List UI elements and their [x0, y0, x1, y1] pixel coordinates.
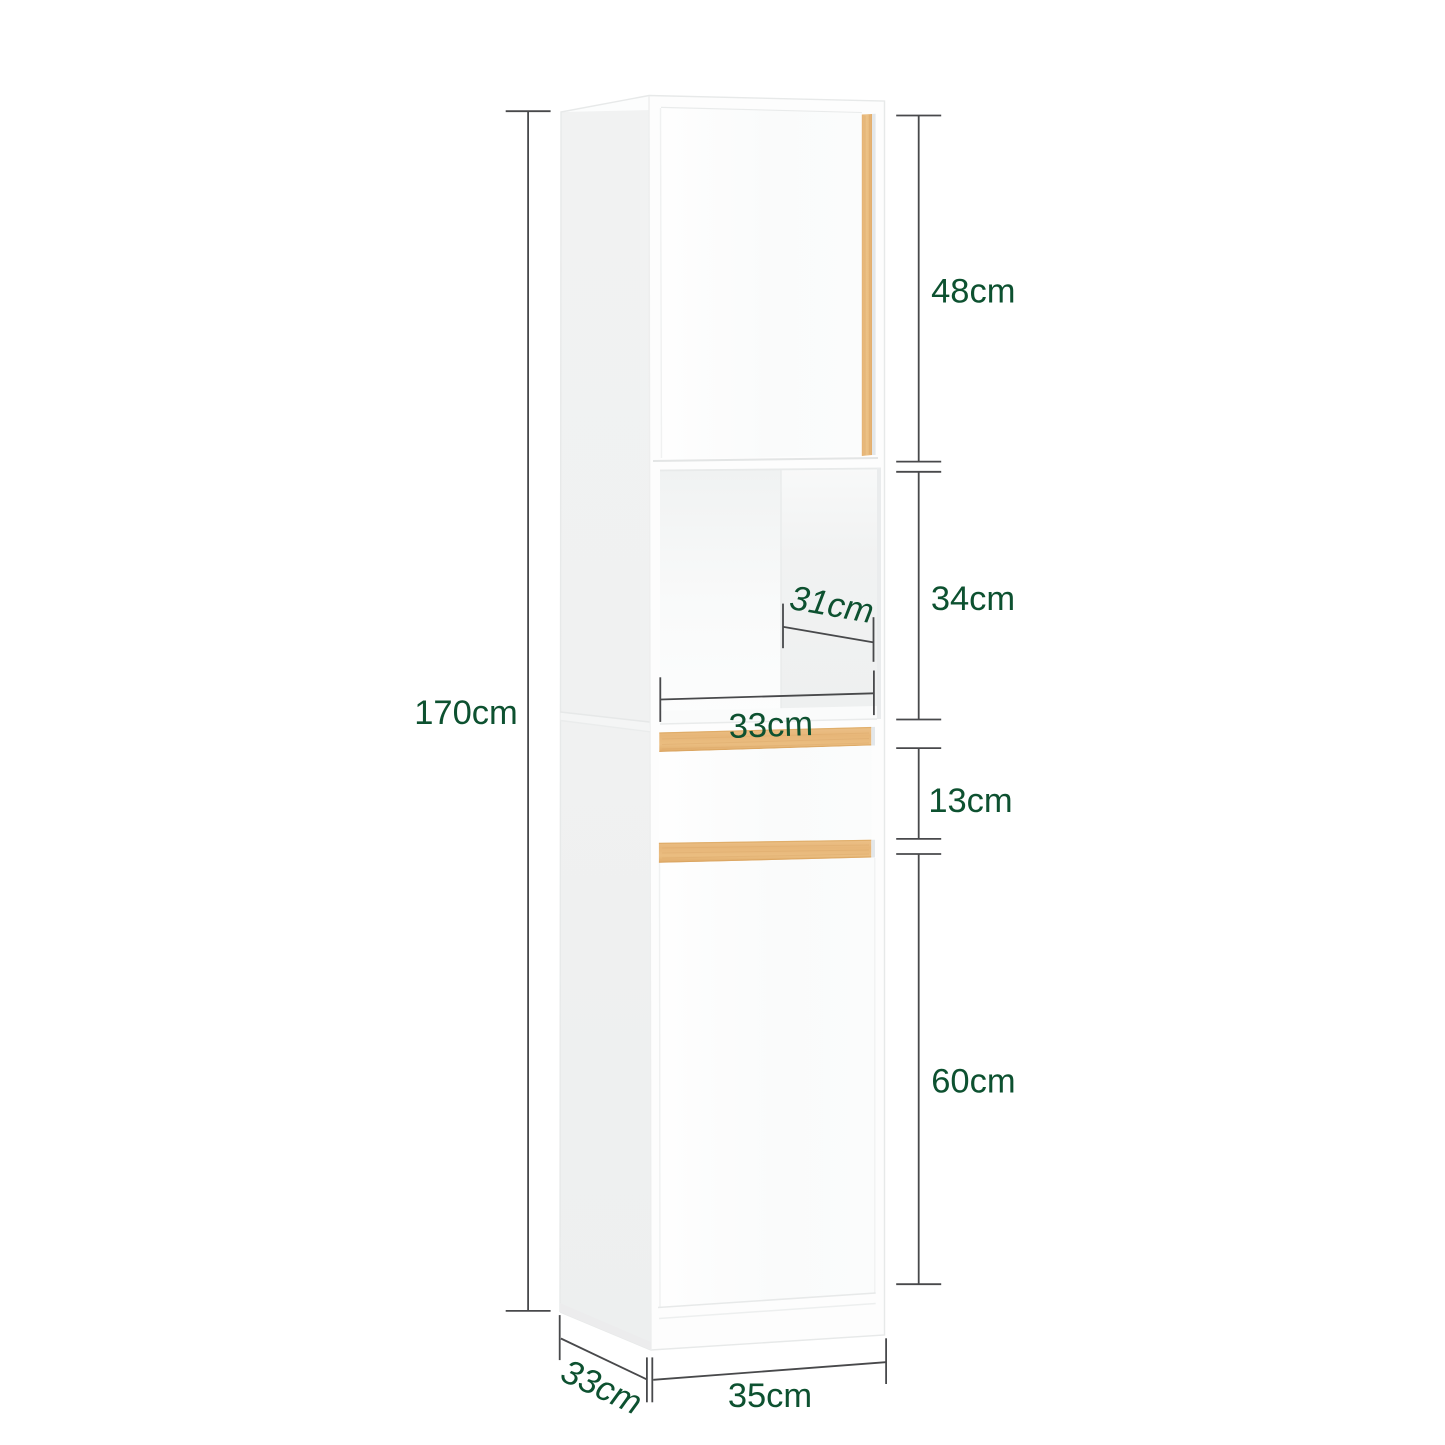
svg-text:60cm: 60cm — [931, 1063, 1015, 1101]
svg-text:170cm: 170cm — [414, 694, 518, 732]
svg-text:48cm: 48cm — [931, 273, 1015, 311]
svg-text:35cm: 35cm — [728, 1377, 812, 1415]
svg-text:34cm: 34cm — [931, 580, 1015, 618]
svg-text:13cm: 13cm — [928, 782, 1012, 820]
svg-text:33cm: 33cm — [728, 705, 814, 746]
